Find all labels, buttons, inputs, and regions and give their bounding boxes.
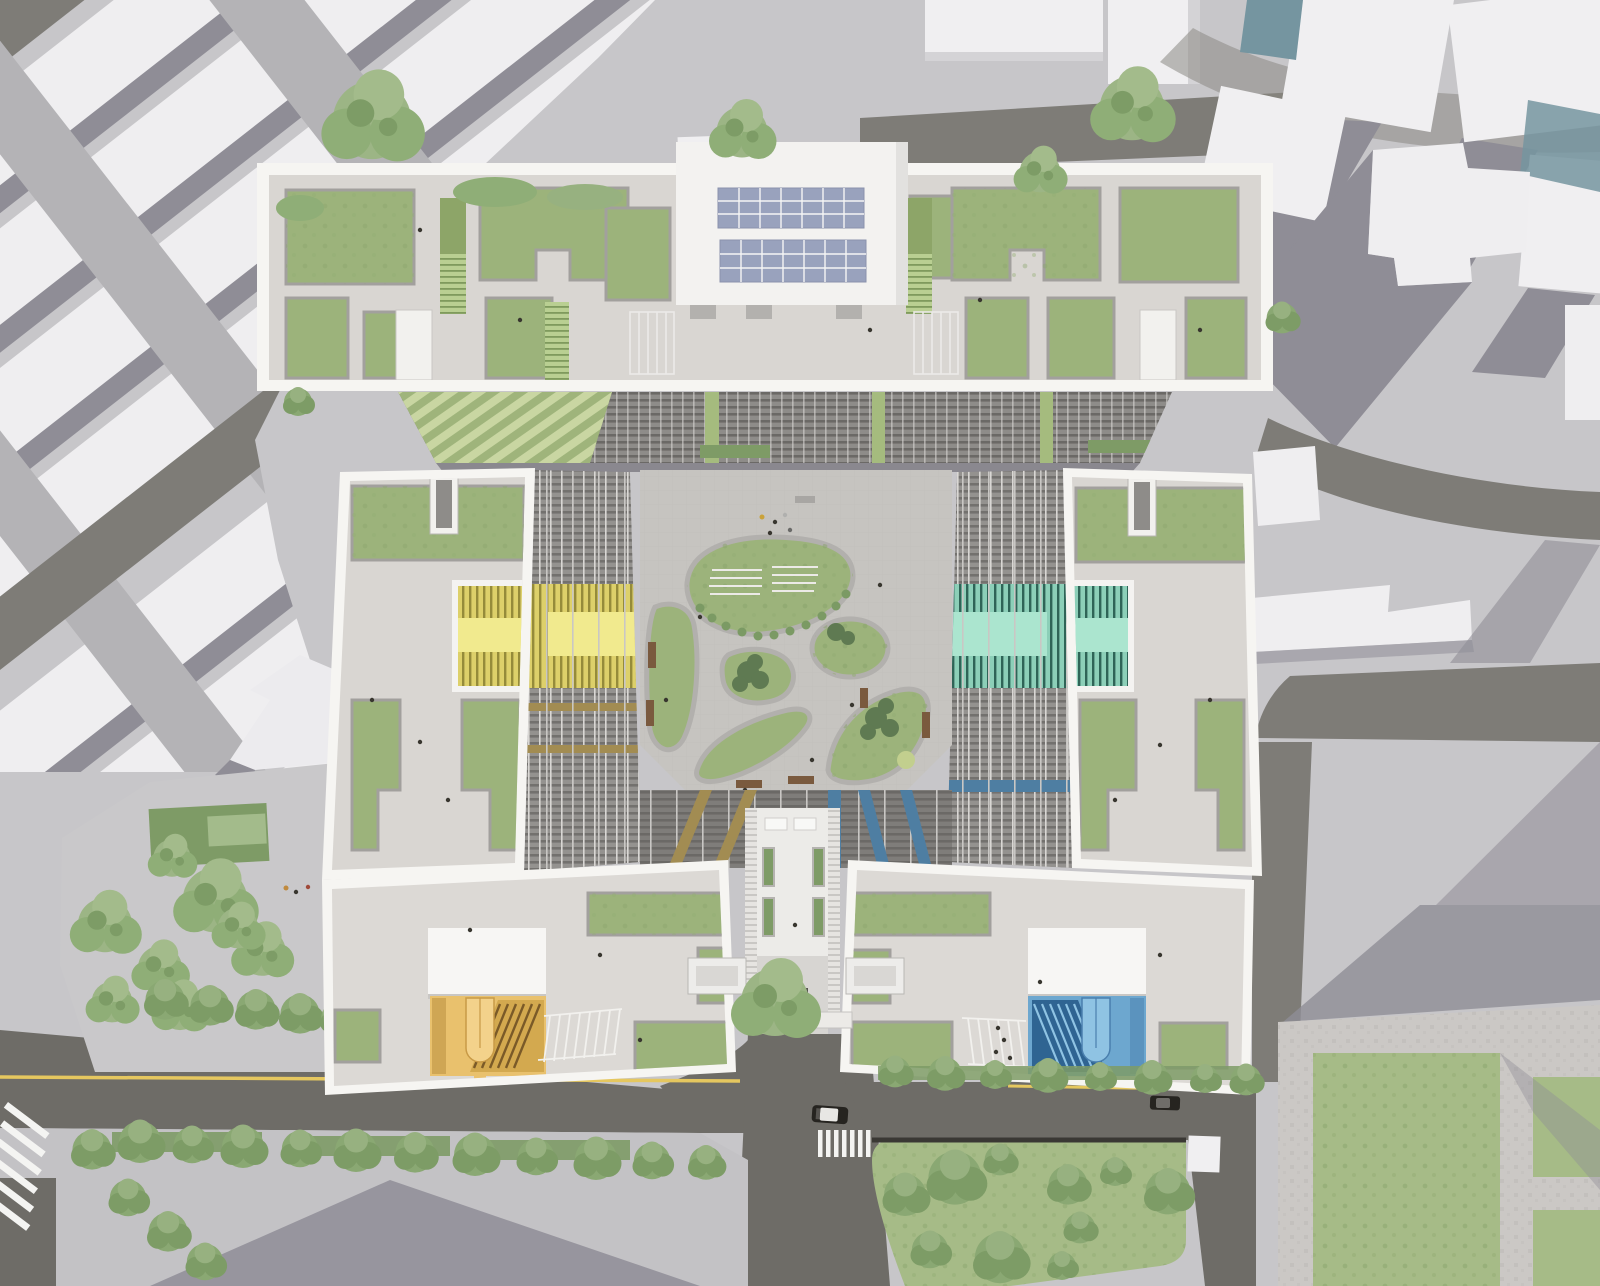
- west-tower-inner-facade: [524, 470, 644, 872]
- slab-skylight-1: [396, 310, 432, 380]
- southwest-canopy: [428, 928, 546, 998]
- amber-stair: [430, 996, 546, 1082]
- kiosk: [1187, 1135, 1220, 1172]
- solar-panel-array-1: [718, 188, 864, 228]
- solar-roof-box: [676, 142, 908, 319]
- southwest-wing: [322, 860, 738, 1095]
- east-tower-inner-facade: [947, 470, 1073, 868]
- glass-roof-1: [1240, 0, 1303, 60]
- southeast-canopy: [1028, 928, 1146, 998]
- slab-south-facade: [398, 392, 1172, 463]
- west-atrium-opening: [452, 580, 528, 692]
- solar-panel-array-2: [720, 240, 866, 282]
- slab-skylight-2: [1140, 310, 1176, 380]
- car-1: [811, 1105, 848, 1124]
- aerial-site-render: Aerial architectural rendering — residen…: [0, 0, 1600, 1286]
- island-west: [647, 604, 697, 750]
- car-2: [1150, 1095, 1180, 1110]
- west-tower: [322, 468, 644, 880]
- east-tower: [947, 468, 1262, 876]
- central-courtyard: [640, 470, 952, 792]
